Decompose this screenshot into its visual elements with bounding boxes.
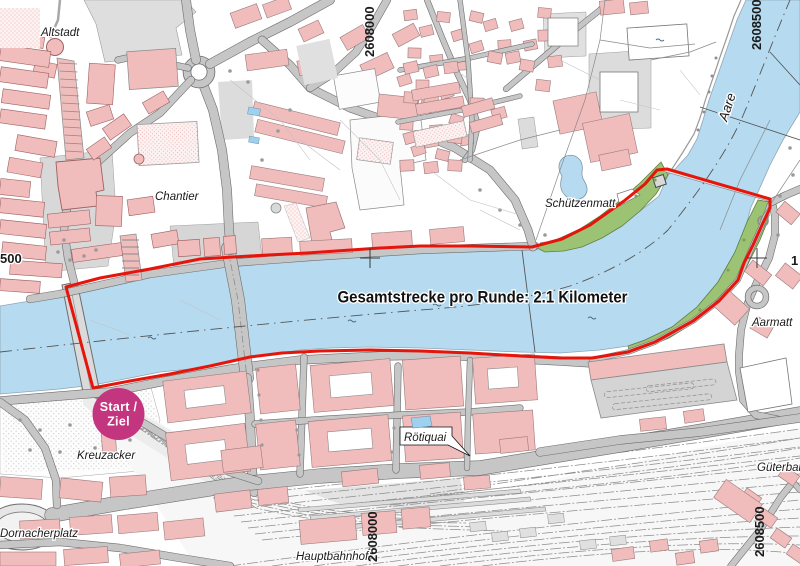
svg-text:2608500: 2608500 bbox=[752, 506, 767, 557]
svg-text:Rötiquai: Rötiquai bbox=[404, 432, 447, 444]
svg-text:2608500: 2608500 bbox=[749, 0, 764, 50]
svg-text:Dornacherplatz: Dornacherplatz bbox=[0, 528, 78, 540]
svg-text:Aarmatt: Aarmatt bbox=[751, 317, 793, 329]
svg-text:Schützenmatt: Schützenmatt bbox=[545, 198, 616, 210]
svg-text:Ziel: Ziel bbox=[107, 415, 130, 429]
svg-text:2608000: 2608000 bbox=[362, 6, 377, 57]
svg-text:Güterbahn: Güterbahn bbox=[757, 462, 800, 474]
svg-text:Altstadt: Altstadt bbox=[40, 27, 80, 39]
svg-text:1: 1 bbox=[791, 253, 798, 268]
svg-text:Chantier: Chantier bbox=[155, 191, 200, 203]
svg-text:Kreuzacker: Kreuzacker bbox=[77, 450, 136, 462]
svg-text:Start /: Start / bbox=[100, 400, 138, 414]
svg-text:Gesamtstrecke pro Runde: 2.1 K: Gesamtstrecke pro Runde: 2.1 Kilometer bbox=[338, 288, 628, 307]
svg-text:500: 500 bbox=[0, 251, 22, 266]
svg-text:Hauptbahnhof: Hauptbahnhof bbox=[296, 551, 370, 563]
